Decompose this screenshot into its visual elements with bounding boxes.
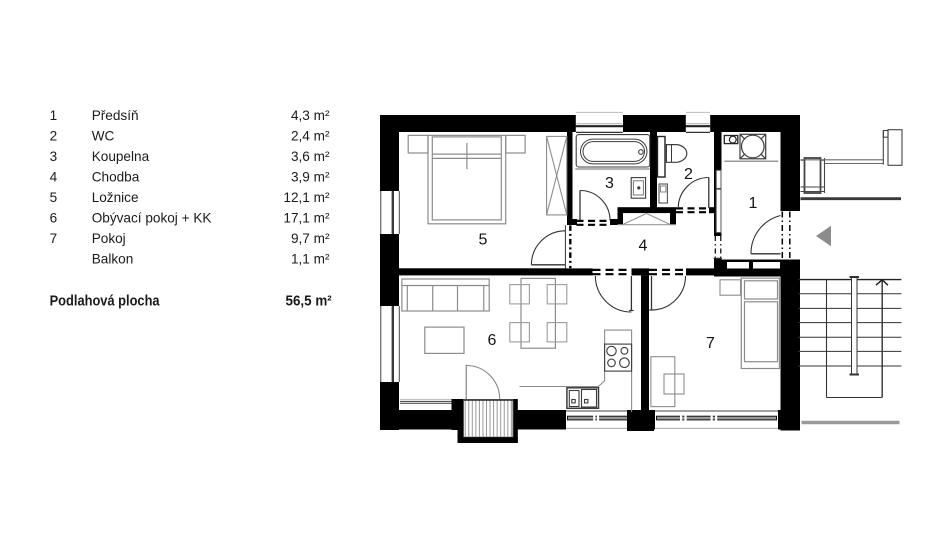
svg-text:WC: WC <box>92 129 115 144</box>
svg-text:4: 4 <box>50 170 58 185</box>
svg-text:Balkon: Balkon <box>92 251 134 266</box>
svg-text:3: 3 <box>605 175 614 192</box>
svg-text:5: 5 <box>479 232 488 249</box>
svg-text:7: 7 <box>50 231 58 246</box>
svg-text:6: 6 <box>488 332 497 349</box>
svg-text:1: 1 <box>749 195 758 212</box>
svg-text:Podlahová plocha: Podlahová plocha <box>50 294 161 310</box>
svg-text:2,4 m²: 2,4 m² <box>291 129 330 144</box>
svg-text:17,1 m²: 17,1 m² <box>283 210 330 225</box>
svg-text:3: 3 <box>50 149 58 164</box>
svg-text:Předsíň: Předsíň <box>92 108 139 123</box>
svg-text:Koupelna: Koupelna <box>92 149 150 164</box>
svg-text:4,3 m²: 4,3 m² <box>291 108 330 123</box>
svg-text:4: 4 <box>639 238 648 255</box>
svg-text:56,5 m²: 56,5 m² <box>286 294 332 310</box>
svg-text:1: 1 <box>50 108 58 123</box>
svg-text:1,1 m²: 1,1 m² <box>291 251 330 266</box>
svg-text:Obývací pokoj + KK: Obývací pokoj + KK <box>92 210 212 225</box>
svg-text:9,7 m²: 9,7 m² <box>291 231 330 246</box>
svg-text:5: 5 <box>50 190 58 205</box>
svg-text:7: 7 <box>706 335 715 352</box>
svg-text:Ložnice: Ložnice <box>92 190 139 205</box>
svg-text:3,6 m²: 3,6 m² <box>291 149 330 164</box>
svg-text:6: 6 <box>50 210 58 225</box>
svg-text:2: 2 <box>684 166 693 183</box>
svg-text:Chodba: Chodba <box>92 170 140 185</box>
svg-text:2: 2 <box>50 129 58 144</box>
svg-text:12,1 m²: 12,1 m² <box>283 190 330 205</box>
svg-text:Pokoj: Pokoj <box>92 231 126 246</box>
svg-text:3,9 m²: 3,9 m² <box>291 170 330 185</box>
